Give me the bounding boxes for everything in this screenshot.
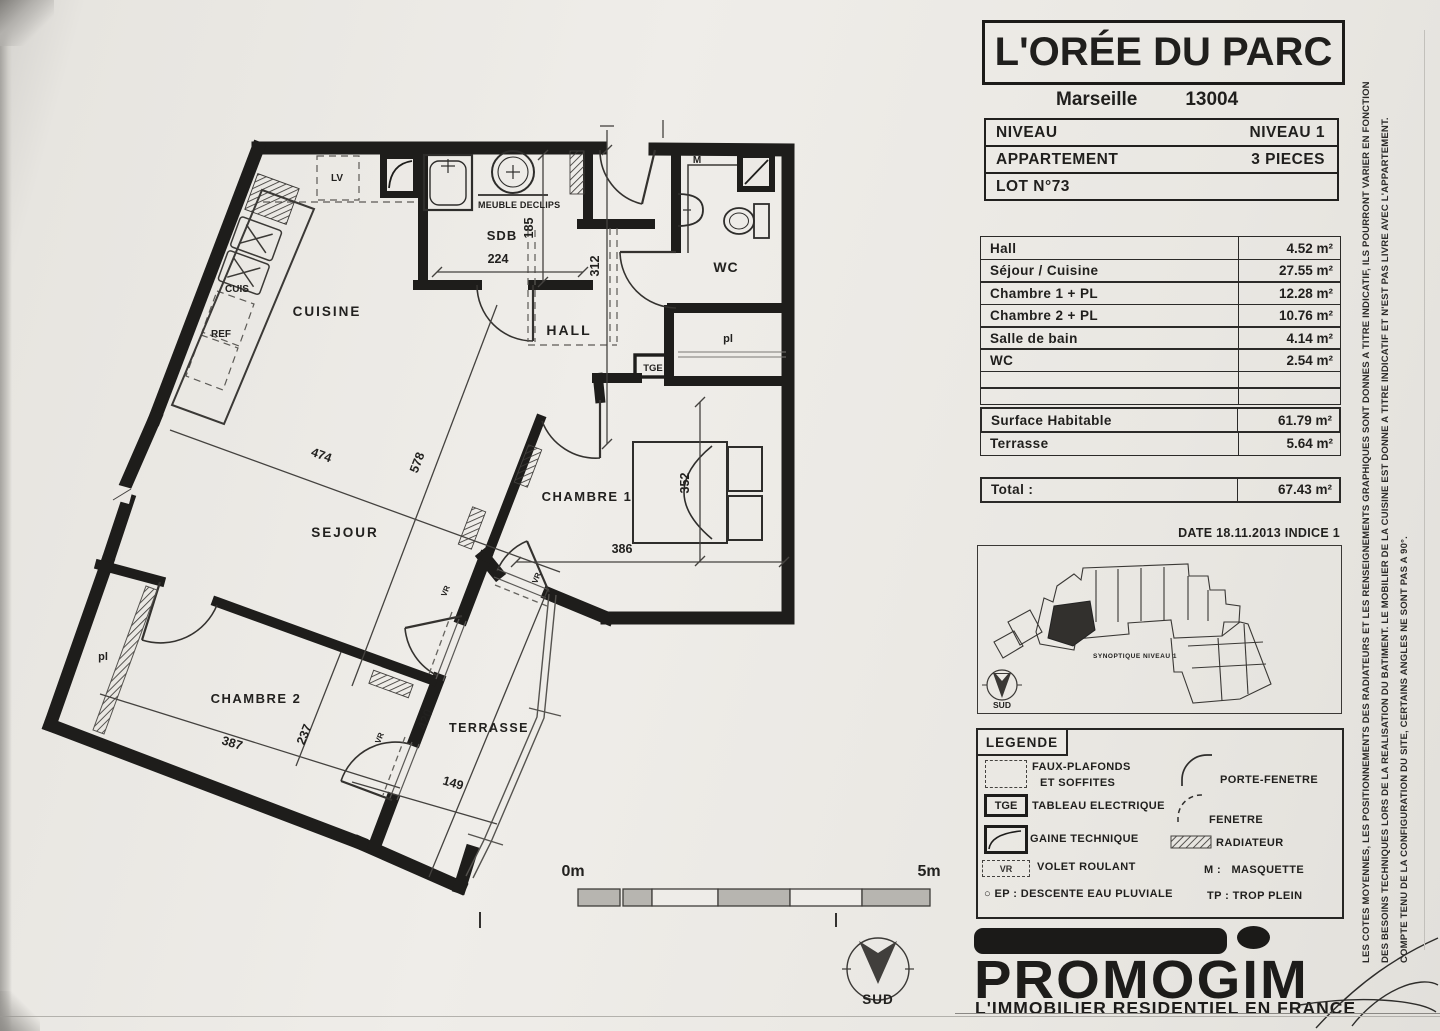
scale-end-label: 5m [917, 863, 940, 880]
legend-item-prefix: M : [1204, 864, 1221, 876]
photo-corner-bottom-left [0, 991, 40, 1031]
fenetre-symbol [1175, 792, 1209, 824]
legend-box: LEGENDE FAUX-PLAFONDS ET SOFFITES TGE TA… [976, 728, 1344, 919]
row-value: 61.79 m² [1238, 409, 1339, 431]
info-row-lot: LOT N°73 [984, 172, 1339, 201]
panel-underline [955, 1013, 1440, 1014]
info-row-niveau: NIVEAU NIVEAU 1 [984, 118, 1339, 147]
label-meuble-declips: MEUBLE DECLIPS [478, 200, 560, 210]
row-value [1239, 372, 1340, 388]
scale-start-label: 0m [561, 863, 584, 880]
radiateur-symbol [1170, 835, 1212, 849]
table-row: Chambre 1 + PL12.28 m² [980, 281, 1341, 305]
legend-item-label: GAINE TECHNIQUE [1030, 833, 1139, 845]
dim-224: 224 [488, 252, 509, 266]
legend-title: LEGENDE [976, 728, 1068, 756]
row-label: Chambre 2 + PL [981, 305, 1239, 327]
legend-item-masquette: M : MASQUETTE [1204, 864, 1304, 876]
vr-symbol-text: VR [1000, 864, 1013, 874]
synoptique-sud-label: SUD [993, 700, 1011, 710]
synoptique-drawing: SYNOPTIQUE NIVEAU 1 SUD [978, 546, 1338, 710]
gaine-technique-kitchen [380, 152, 420, 198]
legend-item-prefix: EP : [995, 888, 1018, 900]
floor-plan-drawing: TGE [0, 0, 960, 1031]
label-masquette-m: M [693, 155, 701, 166]
synoptique-label: SYNOPTIQUE NIVEAU 1 [1093, 653, 1177, 660]
legend-item-label: MASQUETTE [1231, 864, 1304, 876]
legend-item-label: FAUX-PLAFONDS [1032, 761, 1131, 773]
dim-387: 387 [220, 733, 244, 753]
label-ref: REF [211, 329, 231, 340]
dim-185: 185 [522, 218, 536, 239]
bed [633, 442, 762, 543]
legend-item-label: RADIATEUR [1216, 837, 1284, 849]
info-label: LOT N°73 [996, 178, 1070, 196]
south-compass: SUD [842, 938, 914, 1007]
toilet [724, 204, 769, 238]
wc-basin [678, 194, 703, 226]
row-label: Terrasse [981, 433, 1239, 455]
dimension-values: 224 185 312 474 578 352 386 387 237 420 … [220, 218, 692, 793]
table-row-terrasse: Terrasse5.64 m² [980, 432, 1341, 456]
scanned-floor-plan-page: TGE [0, 0, 1440, 1031]
vertical-disclaimer: LES COTES MOYENNES, LES POSITIONNEMENTS … [1357, 63, 1414, 963]
project-title-box: L'ORÉE DU PARC [982, 20, 1345, 85]
synoptique-compass: SUD [982, 670, 1022, 710]
compass-sud-label: SUD [862, 992, 894, 1007]
page-edge-right [1424, 30, 1425, 950]
info-label: NIVEAU [996, 124, 1058, 142]
row-value: 5.64 m² [1239, 433, 1340, 455]
porte-fenetre-symbol [1178, 752, 1214, 788]
partition-walls [100, 150, 788, 680]
highlighted-unit [1048, 601, 1095, 646]
ep-circle-icon: ○ [984, 888, 995, 900]
dim-312: 312 [588, 256, 602, 277]
date-indice-line: DATE 18.11.2013 INDICE 1 [1160, 526, 1340, 540]
info-value: NIVEAU 1 [1250, 124, 1326, 142]
faux-plafond-symbol [985, 760, 1027, 788]
area-table: Hall4.52 m² Séjour / Cuisine27.55 m² Cha… [980, 238, 1341, 503]
legend-item-trop-plein: TP : TROP PLEIN [1207, 890, 1302, 902]
row-value: 4.14 m² [1239, 327, 1340, 349]
room-labels: CUISINE SEJOUR HALL SDB WC CHAMBRE 1 CHA… [211, 228, 739, 735]
room-label-cuisine: CUISINE [293, 304, 362, 319]
label-vr-1: VR [439, 584, 452, 598]
info-value: 3 PIECES [1251, 151, 1325, 169]
row-label [981, 372, 1239, 388]
bathtub [424, 155, 472, 210]
dimension-lines [100, 120, 789, 877]
legend-item-label: FENETRE [1209, 814, 1263, 826]
disclaimer-line-1: LES COTES MOYENNES, LES POSITIONNEMENTS … [1357, 63, 1376, 963]
table-row: Salle de bain4.14 m² [980, 326, 1341, 350]
bathroom-sink [478, 151, 548, 195]
legend-item-label: TABLEAU ELECTRIQUE [1032, 800, 1165, 812]
table-row-empty [980, 371, 1341, 389]
row-label: Chambre 1 + PL [981, 282, 1239, 304]
legend-item-label: DESCENTE EAU PLUVIALE [1021, 888, 1173, 900]
row-value: 27.55 m² [1239, 260, 1340, 282]
table-row-surface-habitable: Surface Habitable61.79 m² [980, 407, 1341, 433]
dim-386: 386 [612, 542, 633, 556]
table-row: WC2.54 m² [980, 348, 1341, 372]
row-label [981, 388, 1239, 404]
row-value: 4.52 m² [1239, 237, 1340, 259]
row-value [1239, 388, 1340, 404]
room-label-wc: WC [713, 259, 738, 275]
terrace-railing [466, 594, 561, 878]
bottom-hairline [0, 1016, 1440, 1017]
table-row: Chambre 2 + PL10.76 m² [980, 304, 1341, 328]
legend-item-label: ET SOFFITES [1040, 777, 1115, 789]
dim-474: 474 [309, 445, 333, 465]
disclaimer-line-2: DES BESOINS TECHNIQUES LORS DE LA REALIS… [1376, 63, 1395, 963]
legend-item-ep: ○ EP : DESCENTE EAU PLUVIALE [984, 888, 1173, 900]
room-label-sejour: SEJOUR [311, 525, 379, 540]
row-value: 67.43 m² [1238, 479, 1339, 501]
vr-symbol: VR [982, 860, 1030, 877]
label-cuis: CUIS [225, 284, 249, 295]
table-row-total: Total :67.43 m² [980, 477, 1341, 503]
synoptique-box: SYNOPTIQUE NIVEAU 1 SUD [977, 545, 1342, 714]
postal-code: 13004 [1185, 89, 1238, 111]
row-label: Surface Habitable [982, 409, 1238, 431]
registration-ticks [480, 912, 836, 928]
kitchen-counter [172, 174, 314, 424]
room-label-sdb: SDB [487, 228, 517, 243]
table-row: Hall4.52 m² [980, 236, 1341, 260]
tge-label: TGE [643, 363, 663, 374]
placard-shelves [678, 352, 786, 357]
disclaimer-line-3: COMPTE TENU DE LA CONFIGURATION DU SITE,… [1395, 63, 1414, 963]
label-pl-chambre1: pl [723, 333, 733, 345]
row-label: Total : [982, 479, 1238, 501]
info-rows: NIVEAU NIVEAU 1 APPARTEMENT 3 PIECES LOT… [984, 120, 1339, 201]
project-title: L'ORÉE DU PARC [995, 30, 1333, 75]
row-label: Hall [981, 237, 1239, 259]
row-value: 10.76 m² [1239, 305, 1340, 327]
radiators [369, 151, 584, 698]
legend-item-label: VOLET ROULANT [1037, 861, 1136, 873]
photo-corner-top-left [0, 0, 54, 46]
room-label-chambre1: CHAMBRE 1 [542, 489, 633, 504]
legend-item-label: TROP PLEIN [1233, 890, 1303, 902]
row-value: 2.54 m² [1239, 349, 1340, 371]
dim-149: 149 [441, 774, 465, 793]
row-label: WC [981, 349, 1239, 371]
room-label-terrasse: TERRASSE [449, 721, 529, 735]
info-label: APPARTEMENT [996, 151, 1118, 169]
city-name: Marseille [1056, 89, 1137, 111]
dim-352: 352 [678, 473, 692, 494]
tge-symbol: TGE [984, 794, 1028, 817]
legend-item-label: PORTE-FENETRE [1220, 774, 1318, 786]
room-label-hall: HALL [546, 322, 591, 338]
gaine-technique-wc [737, 152, 775, 192]
label-pl-chambre2: pl [98, 651, 108, 663]
scale-bar: 0m 5m [561, 863, 940, 906]
row-label: Salle de bain [981, 327, 1239, 349]
legend-item-prefix: TP : [1207, 890, 1229, 902]
table-row: Séjour / Cuisine27.55 m² [980, 259, 1341, 283]
row-label: Séjour / Cuisine [981, 260, 1239, 282]
gaine-symbol [984, 825, 1028, 854]
dim-578: 578 [407, 450, 428, 475]
row-value: 12.28 m² [1239, 282, 1340, 304]
room-label-chambre2: CHAMBRE 2 [211, 691, 302, 706]
logo-dot-icon [1237, 926, 1270, 949]
label-lv: LV [331, 173, 343, 184]
info-row-appartement: APPARTEMENT 3 PIECES [984, 145, 1339, 174]
tge-symbol-text: TGE [995, 800, 1018, 812]
masquette-line [688, 165, 737, 253]
table-row-empty [980, 387, 1341, 405]
